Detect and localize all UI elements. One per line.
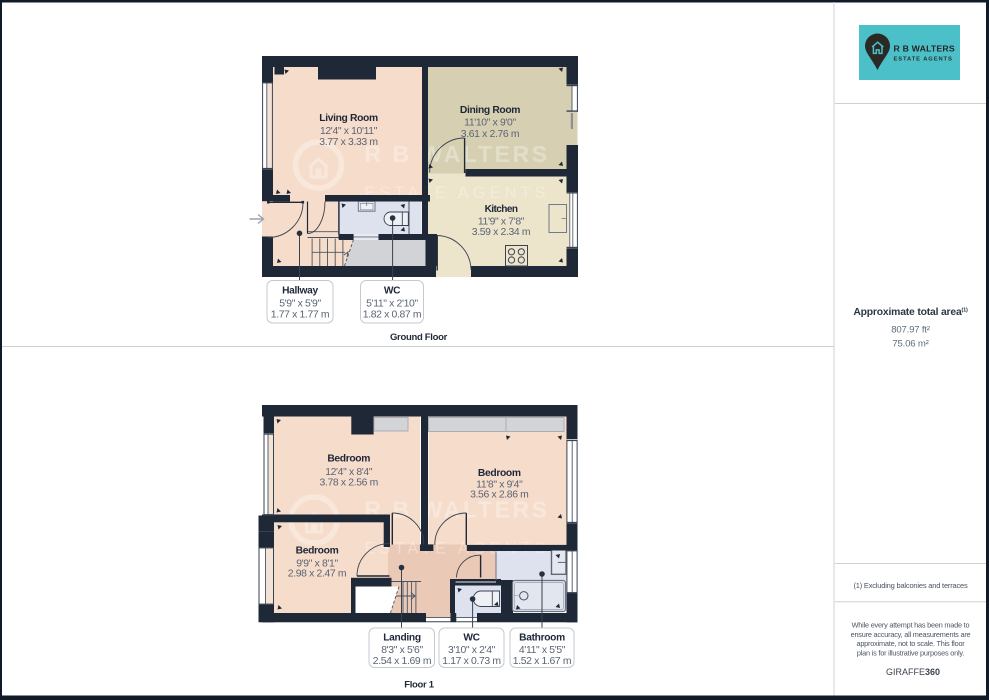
svg-text:plan is for illustrative purpo: plan is for illustrative purposes only.: [857, 648, 964, 657]
svg-text:approximate, not to scale. Thi: approximate, not to scale. This floor: [856, 639, 965, 648]
svg-text:2.98 x 2.47 m: 2.98 x 2.47 m: [288, 569, 346, 580]
svg-text:Landing: Landing: [383, 633, 421, 644]
svg-text:807.97 ft²: 807.97 ft²: [891, 325, 931, 336]
svg-text:WC: WC: [384, 286, 401, 297]
svg-text:Approximate total area(1): Approximate total area(1): [853, 307, 968, 318]
svg-text:11'10" x 9'0": 11'10" x 9'0": [464, 118, 516, 129]
svg-text:3'10" x 2'4": 3'10" x 2'4": [448, 645, 496, 656]
svg-text:Floor 1: Floor 1: [404, 680, 435, 691]
svg-text:3.77 x 3.33 m: 3.77 x 3.33 m: [319, 137, 377, 148]
svg-text:1.77 x 1.77 m: 1.77 x 1.77 m: [271, 310, 329, 321]
svg-text:Bedroom: Bedroom: [296, 546, 339, 557]
svg-text:Bedroom: Bedroom: [327, 454, 370, 465]
svg-text:8'3" x 5'6": 8'3" x 5'6": [381, 645, 423, 656]
svg-text:R B WALTERS: R B WALTERS: [364, 141, 549, 167]
svg-text:1.82 x 0.87 m: 1.82 x 0.87 m: [363, 310, 421, 321]
svg-text:R B WALTERS: R B WALTERS: [894, 44, 955, 54]
svg-text:3.61 x 2.76 m: 3.61 x 2.76 m: [461, 129, 519, 140]
svg-text:1.17 x 0.73 m: 1.17 x 0.73 m: [442, 656, 500, 667]
svg-text:While every attempt has been m: While every attempt has been made to: [852, 621, 970, 630]
svg-text:5'11" x 2'10": 5'11" x 2'10": [366, 299, 418, 310]
svg-text:3.56 x 2.86 m: 3.56 x 2.86 m: [470, 490, 528, 501]
svg-text:WC: WC: [463, 633, 480, 644]
svg-text:Bedroom: Bedroom: [478, 468, 521, 479]
svg-text:1.52 x 1.67 m: 1.52 x 1.67 m: [513, 656, 571, 667]
svg-text:4'11" x 5'5": 4'11" x 5'5": [519, 645, 566, 656]
svg-text:Dining Room: Dining Room: [460, 105, 520, 116]
svg-text:Bathroom: Bathroom: [519, 633, 565, 644]
svg-text:3.78 x 2.56 m: 3.78 x 2.56 m: [319, 478, 377, 489]
svg-text:Kitchen: Kitchen: [485, 204, 518, 215]
svg-text:GIRAFFE360: GIRAFFE360: [886, 667, 940, 677]
svg-text:12'4" x 10'11": 12'4" x 10'11": [320, 126, 378, 137]
svg-text:ESTATE AGENTS: ESTATE AGENTS: [894, 57, 953, 63]
svg-text:ensure accuracy, all measureme: ensure accuracy, all measurements are: [851, 630, 971, 639]
svg-text:5'9" x 5'9": 5'9" x 5'9": [279, 299, 321, 310]
svg-text:Ground Floor: Ground Floor: [390, 332, 448, 343]
svg-text:75.06 m²: 75.06 m²: [892, 339, 929, 350]
svg-text:(1) Excluding balconies and te: (1) Excluding balconies and terraces: [853, 581, 968, 590]
svg-text:12'4" x 8'4": 12'4" x 8'4": [325, 467, 373, 478]
svg-text:11'9" x 7'8": 11'9" x 7'8": [478, 217, 525, 228]
svg-text:3.59 x 2.34 m: 3.59 x 2.34 m: [472, 227, 530, 238]
svg-text:Hallway: Hallway: [282, 286, 318, 297]
svg-text:Living Room: Living Room: [319, 113, 378, 124]
svg-text:2.54 x 1.69 m: 2.54 x 1.69 m: [373, 656, 431, 667]
